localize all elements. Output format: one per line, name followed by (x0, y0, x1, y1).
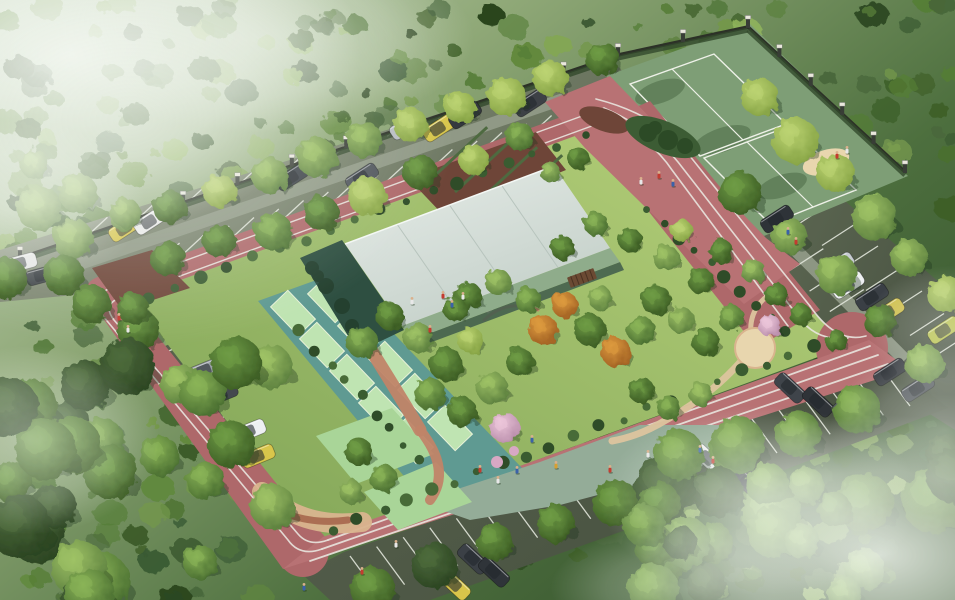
lamp-pillar-icon (839, 103, 845, 116)
lamp-pillar-icon (871, 132, 877, 145)
rendering-canvas (0, 0, 955, 600)
lamp-pillar-icon (745, 16, 751, 29)
lamp-pillar-icon (902, 161, 908, 174)
lamp-pillar-icon (680, 30, 686, 43)
lamp-pillar-icon (808, 74, 814, 87)
aerial-park-rendering (0, 0, 955, 600)
lamp-pillar-icon (777, 45, 783, 58)
